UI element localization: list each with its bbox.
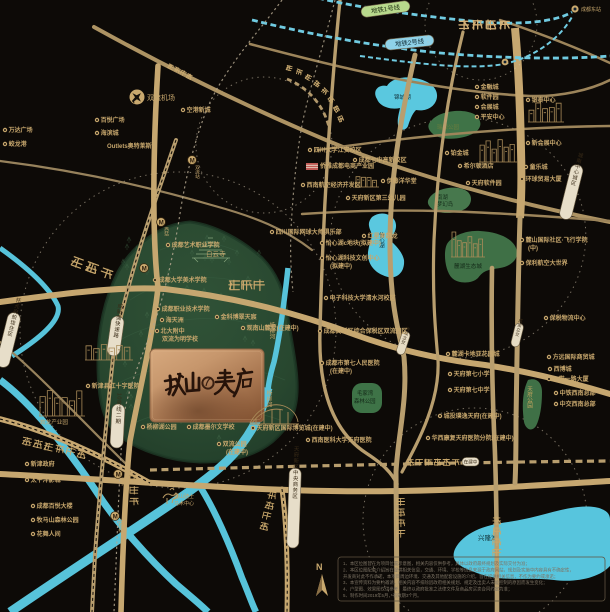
svg-text:北大附中: 北大附中	[161, 327, 185, 335]
svg-text:蛟龙产业园: 蛟龙产业园	[40, 418, 68, 426]
svg-text:天府第七中学: 天府第七中学	[454, 386, 490, 394]
svg-text:南湖: 南湖	[437, 193, 448, 201]
svg-text:成都市第七人民医院: 成都市第七人民医院	[326, 359, 380, 367]
svg-text:铂金城: 铂金城	[451, 149, 469, 157]
svg-text:伊藤洋华堂: 伊藤洋华堂	[386, 177, 417, 185]
svg-text:希尔顿酒店: 希尔顿酒店	[464, 162, 494, 170]
svg-text:白云寺: 白云寺	[206, 249, 226, 258]
svg-text:西站: 西站	[164, 227, 170, 238]
svg-text:1、本区位图旨在为项目位置示意图，相关内容仅供参考，具体以政: 1、本区位图旨在为项目位置示意图，相关内容仅供参考，具体以政府最终规划及实际交付…	[343, 560, 530, 567]
svg-text:华西康复天府医院分院(在建中): 华西康复天府医院分院(在建中)	[432, 434, 514, 442]
svg-text:平安中心: 平安中心	[481, 113, 505, 121]
svg-text:梦幻岛: 梦幻岛	[437, 200, 453, 208]
svg-text:海天洲: 海天洲	[166, 316, 184, 324]
svg-text:保税物流中心: 保税物流中心	[549, 314, 586, 322]
svg-text:金科博翠天宸: 金科博翠天宸	[220, 313, 258, 321]
svg-text:M: M	[116, 472, 121, 478]
svg-text:2、本区位图配套介绍旨在提供相关信息，交通、环境、学校等信息: 2、本区位图配套介绍旨在提供相关信息，交通、环境、学校等信息来源于政府网站，规划…	[343, 566, 574, 573]
svg-text:天府第七小学: 天府第七小学	[454, 370, 490, 378]
svg-text:成都艺术职业学院: 成都艺术职业学院	[172, 241, 220, 249]
svg-text:麓山国际社区·飞行学院: 麓山国际社区·飞行学院	[526, 236, 588, 244]
svg-text:西南医科大学天府医院: 西南医科大学天府医院	[312, 436, 372, 444]
svg-text:环球贸易大厦: 环球贸易大厦	[526, 175, 563, 183]
svg-text:中铁西南总部: 中铁西南总部	[560, 389, 596, 397]
svg-text:四川国际网球大师俱乐部: 四川国际网球大师俱乐部	[276, 228, 342, 236]
svg-text:双流机场: 双流机场	[147, 93, 175, 102]
svg-text:成都职业技术学院: 成都职业技术学院	[162, 305, 210, 313]
svg-text:方远国际商贸城: 方远国际商贸城	[553, 353, 595, 361]
svg-text:一带一路大厦: 一带一路大厦	[553, 375, 590, 383]
svg-text:麓山骑士: 麓山骑士	[174, 493, 194, 500]
svg-text:新津政府: 新津政府	[31, 460, 55, 468]
svg-text:成都百悦大楼: 成都百悦大楼	[37, 502, 73, 510]
svg-text:会展城: 会展城	[481, 103, 499, 111]
svg-text:观南山麓墅(在建中): 观南山麓墅(在建中)	[247, 324, 299, 332]
svg-text:新会展中心: 新会展中心	[532, 139, 562, 147]
svg-text:双流为明学校: 双流为明学校	[162, 335, 199, 343]
svg-text:M: M	[113, 514, 118, 520]
svg-text:保利航空大世界: 保利航空大世界	[525, 259, 569, 267]
svg-text:天府新区第三幼儿园: 天府新区第三幼儿园	[352, 194, 406, 202]
svg-text:软件园: 软件园	[481, 93, 499, 101]
svg-text:瑞城公园: 瑞城公园	[437, 123, 460, 131]
svg-text:成都东站: 成都东站	[581, 6, 601, 13]
svg-text:天府新区国际博览城(在建中): 天府新区国际博览城(在建中)	[257, 424, 333, 432]
svg-text:花舞人间: 花舞人间	[37, 530, 61, 538]
svg-text:M: M	[142, 266, 147, 272]
svg-text:森林公园: 森林公园	[354, 397, 376, 405]
svg-text:成都高新区综合保税区双流园区: 成都高新区综合保税区双流园区	[324, 327, 408, 335]
svg-text:Outlets奥特莱斯: Outlets奥特莱斯	[107, 142, 152, 150]
svg-text:双流站: 双流站	[195, 165, 201, 180]
svg-text:西南航空经济开发区: 西南航空经济开发区	[307, 181, 361, 189]
svg-text:双流公园: 双流公园	[223, 440, 247, 448]
svg-text:(在建中): (在建中)	[330, 367, 352, 375]
svg-text:怡心湖科技文创中心: 怡心湖科技文创中心	[326, 254, 380, 262]
svg-text:毛家湾: 毛家湾	[357, 389, 374, 397]
svg-text:(中): (中)	[528, 244, 538, 252]
svg-text:(拟建中): (拟建中)	[330, 262, 352, 270]
svg-text:城投璞逸天府(在建中): 城投璞逸天府(在建中)	[444, 412, 502, 420]
svg-text:成都七中高新校区: 成都七中高新校区	[359, 156, 407, 164]
svg-text:牧马山森林公园: 牧马山森林公园	[37, 516, 79, 524]
svg-text:(在建中): (在建中)	[226, 448, 248, 456]
svg-text:五根松: 五根松	[118, 519, 124, 534]
svg-text:怡心湖c地块(拟建中): 怡心湖c地块(拟建中)	[326, 239, 381, 247]
svg-text:成都大学美术学院: 成都大学美术学院	[159, 276, 207, 284]
svg-text:新津县红十字医院: 新津县红十字医院	[92, 382, 140, 390]
svg-text:天府软件园: 天府软件园	[472, 179, 502, 187]
svg-text:N: N	[316, 562, 323, 572]
svg-text:四川大学江安校区: 四川大学江安校区	[314, 146, 362, 154]
svg-text:太平洋影城: 太平洋影城	[30, 476, 61, 484]
svg-text:童乐城: 童乐城	[530, 163, 548, 171]
svg-text:银泰中心: 银泰中心	[532, 96, 556, 104]
svg-text:金融城: 金融城	[480, 83, 499, 91]
svg-text:4、户型图、效果图仅供参考，最终以政府批准之法律文件及商品房: 4、户型图、效果图仅供参考，最终以政府批准之法律文件及商品房买卖合同约定为准；	[343, 586, 512, 593]
svg-text:蛟龙港: 蛟龙港	[9, 140, 28, 148]
svg-text:电子科技大学清水河校区: 电子科技大学清水河校区	[330, 294, 396, 302]
svg-text:海滨城: 海滨城	[101, 129, 119, 137]
svg-text:中交西南总部: 中交西南总部	[560, 400, 596, 408]
svg-text:开发商对此不作承诺，本项目周边环境、交通及其他配套设施的介绍: 开发商对此不作承诺，本项目周边环境、交通及其他配套设施的介绍，旨在提供相关信息，…	[343, 573, 558, 580]
svg-text:空港新城: 空港新城	[187, 106, 211, 114]
svg-text:双兴: 双兴	[121, 477, 127, 488]
svg-text:成都墨尔文学校: 成都墨尔文学校	[193, 423, 236, 431]
svg-text:M: M	[159, 220, 164, 226]
svg-text:杨柳湖公园: 杨柳湖公园	[147, 423, 177, 431]
svg-text:西博城: 西博城	[554, 365, 572, 373]
svg-text:百悦广场: 百悦广场	[101, 116, 125, 124]
svg-text:杨柳河: 杨柳河	[265, 389, 272, 408]
svg-text:麓湖生态城: 麓湖生态城	[454, 262, 482, 270]
svg-text:在建中: 在建中	[464, 458, 478, 465]
svg-text:3、本宣传资料为要约邀请，相关内容不排除因政府相关规划、规定: 3、本宣传资料为要约邀请，相关内容不排除因政府相关规划、规定及出卖人未能控制的原…	[343, 579, 547, 586]
svg-text:5、制作时间2019年5月，有效期3个月。: 5、制作时间2019年5月，有效期3个月。	[343, 592, 422, 599]
svg-text:M: M	[190, 158, 195, 164]
svg-text:万达广场: 万达广场	[8, 126, 33, 134]
svg-text:麓湖卡地亚花园城: 麓湖卡地亚花园城	[452, 350, 500, 358]
svg-text:马术中心: 马术中心	[174, 500, 194, 507]
svg-text:红星美凯龙: 红星美凯龙	[368, 232, 398, 240]
svg-text:天府公园: 天府公园	[526, 386, 533, 410]
